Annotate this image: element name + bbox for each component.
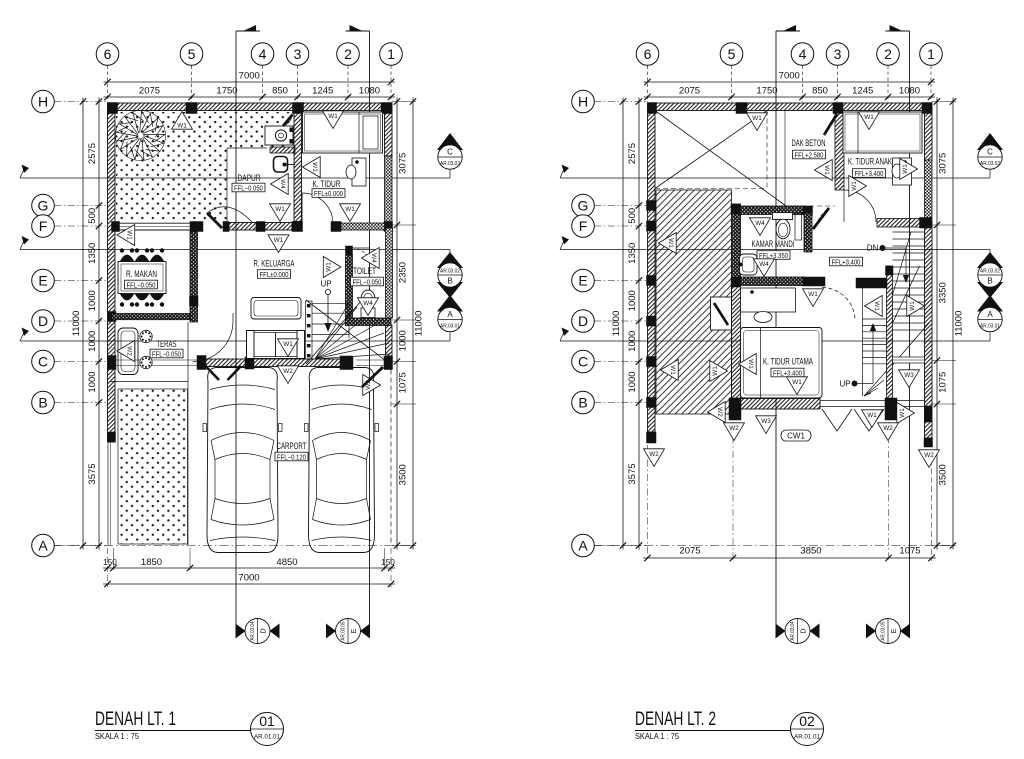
svg-text:B: B	[987, 277, 992, 286]
svg-text:C: C	[38, 354, 48, 370]
svg-text:TERAS: TERAS	[157, 339, 177, 349]
svg-text:3: 3	[834, 46, 842, 62]
svg-text:5: 5	[188, 46, 196, 62]
svg-text:7000: 7000	[779, 71, 800, 82]
svg-text:W2: W2	[729, 425, 739, 432]
svg-text:W4: W4	[363, 300, 373, 307]
svg-text:6: 6	[104, 46, 112, 62]
svg-text:W1: W1	[902, 164, 909, 174]
svg-text:1750: 1750	[756, 86, 777, 97]
svg-text:K. TIDUR: K. TIDUR	[313, 179, 341, 189]
svg-text:3075: 3075	[398, 153, 409, 174]
svg-text:4: 4	[259, 46, 267, 62]
svg-text:3: 3	[294, 46, 302, 62]
svg-text:A: A	[578, 538, 588, 554]
svg-text:R. MAKAN: R. MAKAN	[126, 269, 157, 279]
svg-text:DN: DN	[867, 244, 879, 253]
svg-text:B: B	[447, 277, 452, 286]
svg-text:AR.01.01: AR.01.01	[794, 735, 821, 741]
svg-text:500: 500	[627, 208, 638, 224]
svg-text:W2: W2	[126, 346, 133, 356]
svg-text:C: C	[578, 354, 588, 370]
svg-text:W1: W1	[712, 366, 719, 376]
svg-text:W1: W1	[126, 230, 133, 240]
svg-text:UP: UP	[320, 280, 331, 289]
svg-text:A: A	[987, 310, 993, 319]
svg-text:DAPUR: DAPUR	[238, 173, 261, 183]
svg-text:11000: 11000	[71, 311, 82, 337]
svg-text:W4: W4	[370, 253, 377, 263]
svg-text:1075: 1075	[938, 372, 949, 393]
svg-text:1000: 1000	[398, 330, 409, 351]
svg-text:D: D	[261, 628, 268, 633]
svg-text:W3: W3	[904, 372, 914, 379]
svg-text:3575: 3575	[87, 463, 98, 484]
svg-text:D: D	[578, 313, 588, 329]
svg-text:2075: 2075	[679, 546, 700, 557]
svg-text:1075: 1075	[899, 546, 920, 557]
svg-text:1350: 1350	[87, 243, 98, 264]
svg-text:W4: W4	[755, 220, 765, 227]
svg-text:W3: W3	[761, 418, 771, 425]
svg-text:AR.03.05: AR.03.05	[341, 621, 347, 640]
svg-text:7000: 7000	[239, 71, 260, 82]
svg-text:W1: W1	[851, 181, 858, 191]
svg-text:3575: 3575	[627, 463, 638, 484]
svg-text:3500: 3500	[938, 464, 949, 485]
svg-text:1000: 1000	[627, 371, 638, 392]
svg-text:W2: W2	[716, 407, 723, 417]
svg-text:W1: W1	[747, 359, 754, 369]
svg-text:W1: W1	[326, 262, 333, 272]
svg-text:W4: W4	[279, 179, 286, 189]
svg-text:02: 02	[799, 713, 815, 729]
svg-text:2575: 2575	[87, 143, 98, 164]
svg-text:W1: W1	[345, 206, 355, 213]
svg-text:W1: W1	[752, 115, 762, 122]
svg-text:AR.03.02: AR.03.02	[440, 269, 460, 275]
svg-text:W1: W1	[669, 365, 676, 375]
svg-text:FFL+3.400: FFL+3.400	[855, 169, 884, 178]
svg-text:2350: 2350	[398, 262, 409, 283]
svg-text:AR.03.01: AR.03.01	[980, 324, 1000, 330]
svg-text:1: 1	[927, 46, 935, 62]
svg-text:150: 150	[103, 558, 117, 567]
svg-text:3350: 3350	[938, 282, 949, 303]
svg-text:K. TIDUR UTAMA: K. TIDUR UTAMA	[763, 357, 813, 367]
svg-text:W1: W1	[899, 408, 906, 418]
svg-text:FFL−0.050: FFL−0.050	[353, 277, 382, 286]
svg-text:W1: W1	[177, 123, 187, 130]
svg-text:A: A	[38, 538, 48, 554]
svg-text:5: 5	[728, 46, 736, 62]
svg-text:W1: W1	[864, 114, 874, 121]
svg-text:AR.03.02: AR.03.02	[980, 269, 1000, 275]
svg-text:FFL+3.400: FFL+3.400	[773, 368, 802, 377]
svg-text:2575: 2575	[627, 143, 638, 164]
svg-text:AR.03.04: AR.03.04	[790, 621, 796, 640]
svg-text:FFL±0.000: FFL±0.000	[260, 270, 289, 279]
svg-text:W1: W1	[328, 113, 338, 120]
svg-text:AR.03.01: AR.03.01	[440, 324, 460, 330]
svg-text:1000: 1000	[627, 290, 638, 311]
svg-text:W1: W1	[808, 291, 818, 298]
svg-text:W1: W1	[792, 379, 802, 386]
svg-text:W1: W1	[873, 301, 880, 311]
svg-text:DAK BETON: DAK BETON	[792, 138, 826, 148]
svg-text:AR.03.05: AR.03.05	[881, 621, 887, 640]
svg-text:1075: 1075	[398, 372, 409, 393]
svg-text:AR.03.04: AR.03.04	[250, 621, 256, 640]
svg-text:W1: W1	[867, 412, 877, 419]
svg-text:AR.01.01: AR.01.01	[254, 735, 281, 741]
svg-text:F: F	[579, 218, 588, 234]
svg-text:D: D	[38, 313, 48, 329]
svg-text:1: 1	[387, 46, 395, 62]
svg-text:W2: W2	[883, 425, 893, 432]
svg-text:AR.03.03: AR.03.03	[980, 161, 1000, 167]
svg-text:W1: W1	[909, 301, 916, 311]
svg-text:FFL−0.050: FFL−0.050	[234, 183, 263, 192]
svg-text:F: F	[39, 218, 48, 234]
svg-text:TOILET: TOILET	[353, 266, 376, 276]
svg-text:1750: 1750	[216, 86, 237, 97]
svg-text:K. TIDUR ANAK: K. TIDUR ANAK	[848, 157, 892, 167]
svg-text:2075: 2075	[679, 86, 700, 97]
svg-text:4: 4	[799, 46, 807, 62]
svg-text:850: 850	[272, 86, 288, 97]
svg-text:3500: 3500	[398, 464, 409, 485]
svg-text:11000: 11000	[611, 311, 622, 337]
svg-text:AR.03.03: AR.03.03	[440, 161, 460, 167]
svg-text:6: 6	[644, 46, 652, 62]
svg-text:B: B	[38, 395, 47, 411]
svg-text:W1: W1	[274, 237, 284, 244]
svg-text:11000: 11000	[954, 311, 965, 337]
svg-text:1000: 1000	[87, 290, 98, 311]
svg-text:850: 850	[812, 86, 828, 97]
svg-text:W4: W4	[759, 261, 769, 268]
svg-text:FFL+2.580: FFL+2.580	[795, 150, 824, 159]
svg-text:E: E	[578, 273, 587, 289]
svg-text:C: C	[447, 148, 453, 157]
svg-text:1850: 1850	[141, 557, 162, 568]
svg-text:W1: W1	[283, 341, 293, 348]
svg-text:W1: W1	[823, 165, 830, 175]
svg-text:E: E	[891, 628, 898, 633]
svg-text:FFL±0.000: FFL±0.000	[314, 189, 343, 198]
svg-text:SKALA 1 : 75: SKALA 1 : 75	[95, 732, 140, 741]
svg-text:DENAH LT. 1: DENAH LT. 1	[95, 708, 176, 730]
svg-text:W2: W2	[283, 368, 293, 375]
svg-text:FFL−0.120: FFL−0.120	[277, 452, 306, 461]
svg-text:E: E	[38, 273, 47, 289]
svg-text:3075: 3075	[938, 153, 949, 174]
svg-text:A: A	[447, 310, 453, 319]
svg-text:G: G	[38, 198, 49, 214]
svg-text:G: G	[578, 198, 589, 214]
svg-text:CARPORT: CARPORT	[277, 441, 307, 451]
svg-text:1245: 1245	[312, 86, 333, 97]
svg-text:W1: W1	[275, 206, 285, 213]
svg-text:2: 2	[884, 46, 892, 62]
svg-text:1350: 1350	[627, 243, 638, 264]
svg-text:7000: 7000	[238, 573, 259, 584]
svg-text:KAMAR MANDI: KAMAR MANDI	[752, 239, 795, 249]
svg-text:R. KELUARGA: R. KELUARGA	[254, 259, 295, 269]
svg-text:150: 150	[381, 558, 395, 567]
svg-text:CW1: CW1	[787, 432, 805, 441]
svg-text:01: 01	[259, 713, 275, 729]
svg-text:4850: 4850	[276, 557, 297, 568]
svg-text:W1: W1	[667, 238, 674, 248]
svg-text:W1: W1	[311, 162, 318, 172]
svg-text:FFL+3.400: FFL+3.400	[832, 257, 861, 266]
svg-text:SKALA 1 : 75: SKALA 1 : 75	[635, 732, 680, 741]
svg-text:FFL−0.050: FFL−0.050	[127, 280, 156, 289]
svg-text:DENAH LT. 2: DENAH LT. 2	[635, 708, 716, 730]
svg-text:B: B	[578, 395, 587, 411]
svg-text:500: 500	[87, 208, 98, 224]
svg-text:C: C	[987, 148, 993, 157]
svg-text:D: D	[801, 628, 808, 633]
svg-text:UP: UP	[839, 380, 850, 389]
svg-text:2075: 2075	[139, 86, 160, 97]
svg-text:W2: W2	[924, 452, 934, 459]
svg-text:2: 2	[344, 46, 352, 62]
svg-text:H: H	[578, 94, 588, 110]
svg-text:1000: 1000	[87, 371, 98, 392]
svg-text:FFL−0.050: FFL−0.050	[152, 349, 181, 358]
svg-text:11000: 11000	[414, 311, 425, 337]
svg-text:H: H	[38, 94, 48, 110]
svg-text:3850: 3850	[800, 546, 821, 557]
svg-text:W2: W2	[649, 451, 659, 458]
svg-text:1245: 1245	[852, 86, 873, 97]
svg-text:E: E	[351, 628, 358, 633]
